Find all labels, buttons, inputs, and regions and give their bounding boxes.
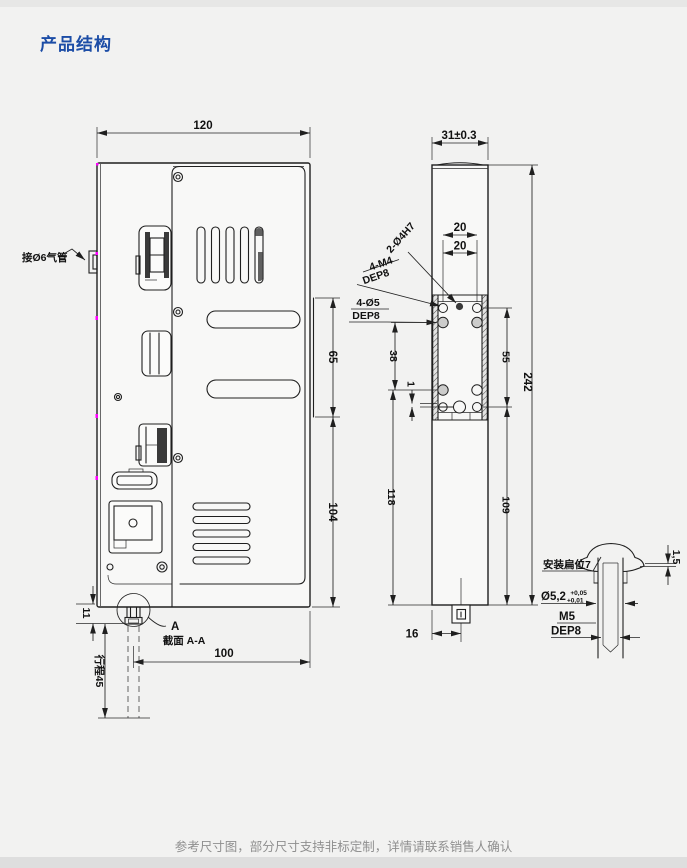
- dim-100-label: 100: [214, 648, 233, 660]
- bore-callout-label: Ø5,2 +0,05 +0,01: [541, 582, 591, 605]
- section-caption-label: 截面 A-A: [163, 634, 206, 647]
- dim-16-label: 16: [406, 629, 419, 641]
- dim-242-label: 242: [521, 372, 533, 391]
- dim-stroke-label: 行程45: [93, 654, 106, 688]
- technical-drawing: 120 65 104 11 行程45 100 A 截面 A-A 接Ø6气管: [0, 0, 687, 820]
- dim-120-label: 120: [193, 120, 212, 132]
- callout-d5-label: 4-Ø5: [356, 297, 380, 309]
- dim-1p5-label: 1,5: [670, 550, 682, 565]
- dim-104-label: 104: [326, 502, 338, 522]
- air-fitting-label: 接Ø6气管: [22, 251, 68, 264]
- section-leader: [148, 617, 166, 626]
- section-marker-label: A: [171, 621, 179, 633]
- bottom-strip: [0, 857, 687, 868]
- thread-callout-label: M5: [559, 611, 576, 623]
- dim-1-label: 1: [405, 381, 417, 387]
- bore-tol-upper-text: +0,05: [570, 590, 587, 597]
- dim-31-label: 31±0.3: [441, 130, 476, 142]
- callout-m4-depth-label: DEP8: [361, 267, 391, 287]
- dim-109-label: 109: [500, 496, 512, 514]
- dim-55-label: 55: [500, 351, 512, 363]
- dim-118-label: 118: [385, 489, 397, 506]
- front-module: [109, 501, 162, 553]
- callout-d5-depth-label: DEP8: [352, 310, 380, 322]
- thread-depth-label: DEP8: [551, 626, 582, 638]
- section-detail-view: 安装扁位7 1,5 Ø5,2 +0,05 +0,01 M5 DEP8: [541, 544, 682, 659]
- flat-callout-label: 安装扁位7: [543, 558, 591, 571]
- front-port: [112, 469, 157, 489]
- front-block-2: [142, 331, 171, 376]
- front-block-3: [136, 424, 171, 466]
- dim-20a-label: 20: [454, 222, 467, 234]
- dim-65-label: 65: [326, 351, 338, 364]
- dim-11-label: 11: [80, 607, 92, 618]
- callout-dowel-label: 2-Ø4H7: [384, 220, 418, 255]
- footer-note: 参考尺寸图，部分尺寸支持非标定制，详情请联系销售人确认: [0, 836, 687, 855]
- dim-20b-label: 20: [454, 241, 467, 253]
- bore-dia-text: Ø5,2: [541, 591, 566, 603]
- front-roller-block: [136, 226, 171, 290]
- dim-38-label: 38: [387, 350, 399, 362]
